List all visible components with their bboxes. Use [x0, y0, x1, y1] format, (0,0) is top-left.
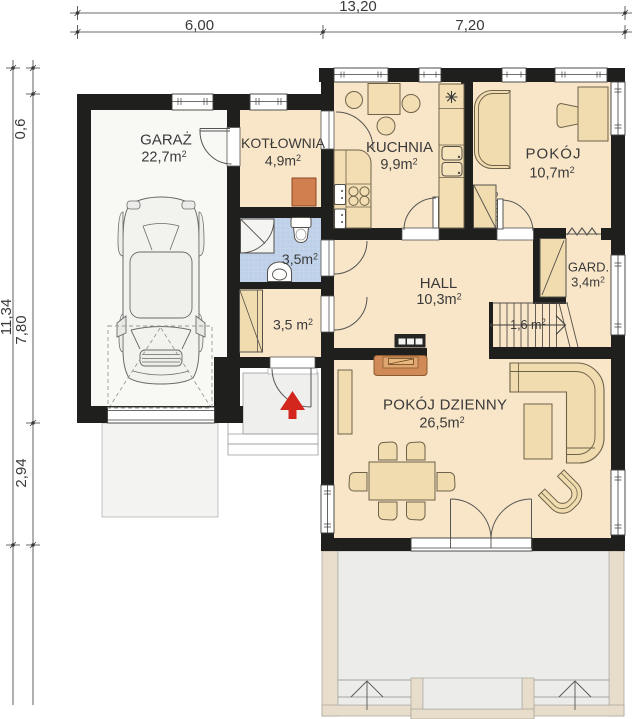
svg-text:0,6: 0,6 [12, 119, 29, 140]
svg-text:4,9m2: 4,9m2 [265, 153, 301, 169]
svg-text:3,5 m2: 3,5 m2 [273, 317, 313, 333]
svg-text:9,9m2: 9,9m2 [380, 157, 417, 174]
svg-text:22,7m2: 22,7m2 [141, 149, 186, 166]
svg-text:HALL: HALL [420, 275, 458, 292]
svg-text:26,5m2: 26,5m2 [419, 415, 464, 432]
svg-text:3,4m2: 3,4m2 [571, 275, 605, 290]
svg-text:GARAŻ: GARAŻ [140, 131, 192, 149]
svg-text:POKÓJ DZIENNY: POKÓJ DZIENNY [383, 397, 507, 414]
svg-text:6,00: 6,00 [185, 17, 214, 34]
svg-text:GARD.: GARD. [568, 260, 609, 275]
svg-text:10,7m2: 10,7m2 [529, 165, 574, 182]
svg-text:2,94: 2,94 [13, 458, 30, 487]
svg-text:1,6 m2: 1,6 m2 [510, 318, 546, 333]
svg-text:7,20: 7,20 [455, 17, 484, 34]
svg-text:KOTŁOWNIA: KOTŁOWNIA [241, 135, 326, 151]
svg-text:KUCHNIA: KUCHNIA [366, 139, 433, 156]
svg-text:7,80: 7,80 [13, 315, 30, 344]
svg-text:3,5m2: 3,5m2 [282, 251, 318, 267]
svg-text:10,3m2: 10,3m2 [416, 292, 461, 309]
svg-text:13,20: 13,20 [339, 0, 377, 15]
svg-text:POKÓJ: POKÓJ [526, 146, 581, 163]
